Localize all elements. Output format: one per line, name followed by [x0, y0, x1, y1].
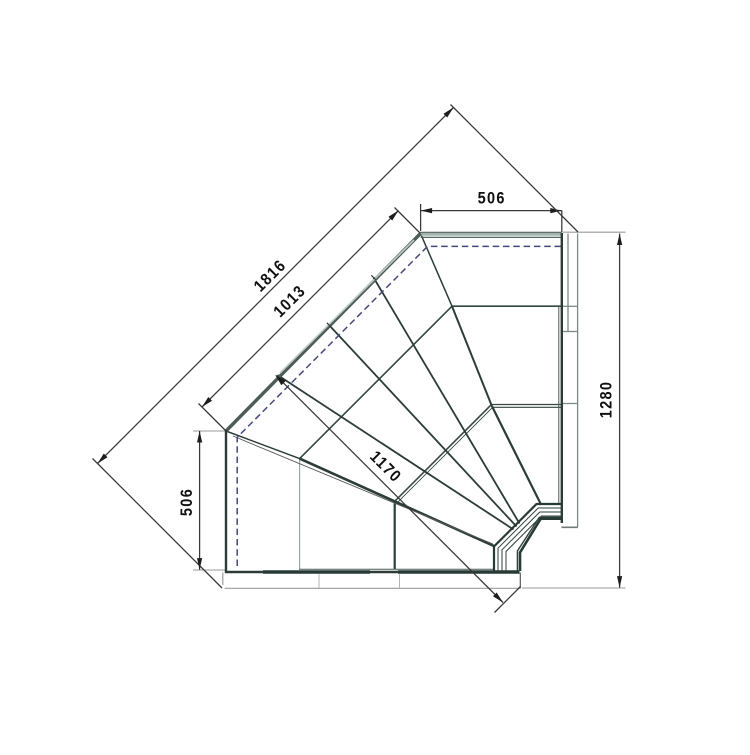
svg-text:1280: 1280: [598, 381, 616, 419]
svg-text:506: 506: [478, 190, 506, 208]
svg-text:506: 506: [178, 488, 196, 516]
